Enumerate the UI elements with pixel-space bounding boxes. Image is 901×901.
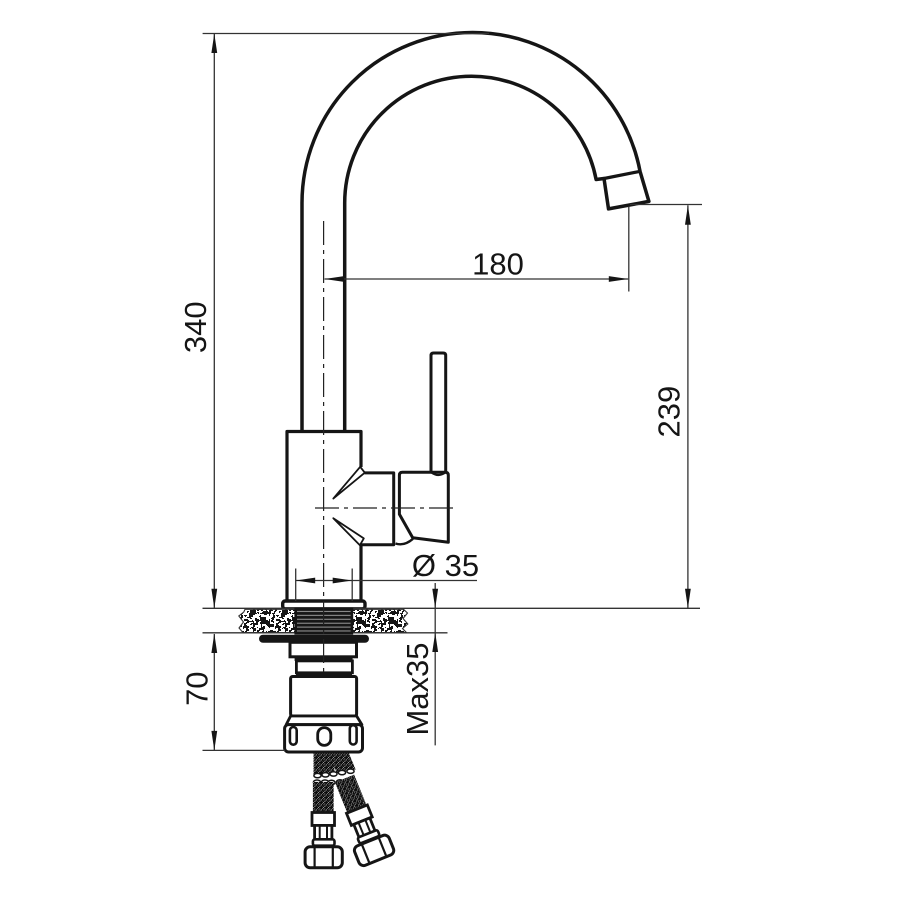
svg-text:70: 70 — [180, 671, 215, 705]
svg-text:239: 239 — [651, 386, 686, 438]
svg-text:340: 340 — [178, 301, 213, 353]
svg-text:Ø 35: Ø 35 — [412, 548, 479, 583]
svg-text:180: 180 — [472, 247, 524, 282]
svg-text:Max35: Max35 — [400, 642, 435, 735]
